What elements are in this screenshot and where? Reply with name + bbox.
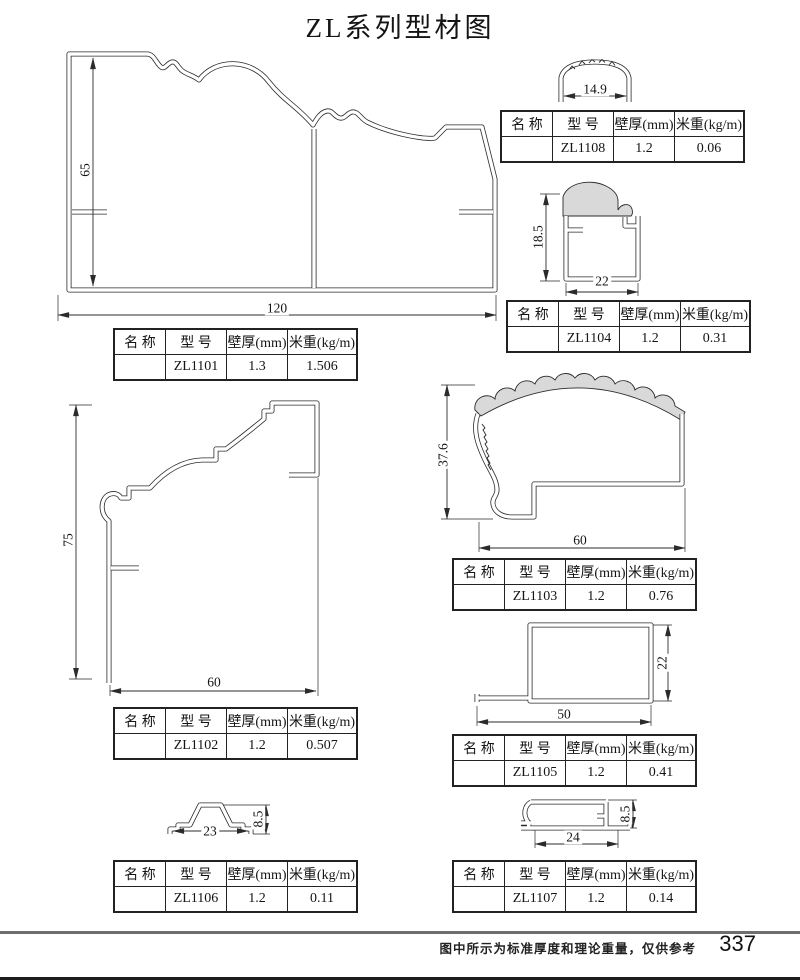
spec-table-zl1102: 名 称 型 号 壁厚(mm) 米重(kg/m) ZL1102 1.2 0.507 (113, 707, 358, 760)
col-name: 名 称 (453, 735, 505, 761)
cell-name (507, 327, 559, 353)
page-number: 337 (719, 931, 756, 957)
cell-model: ZL1102 (166, 734, 227, 760)
col-model: 型 号 (505, 735, 566, 761)
cell-weight: 0.06 (675, 137, 745, 163)
cell-weight: 1.506 (288, 355, 358, 381)
col-name: 名 称 (114, 708, 166, 734)
cell-name (114, 734, 166, 760)
dim-zl1108-width: 14.9 (581, 82, 609, 96)
profile-drawing-zl1103 (435, 372, 705, 557)
cell-thickness: 1.2 (566, 887, 627, 913)
profile-drawing-zl1104 (530, 168, 745, 298)
cell-thickness: 1.2 (620, 327, 681, 353)
col-thickness: 壁厚(mm) (566, 735, 627, 761)
cell-thickness: 1.2 (566, 585, 627, 611)
col-thickness: 壁厚(mm) (620, 301, 681, 327)
col-model: 型 号 (553, 111, 614, 137)
cell-model: ZL1101 (166, 355, 227, 381)
col-weight: 米重(kg/m) (627, 735, 697, 761)
col-model: 型 号 (166, 708, 227, 734)
col-weight: 米重(kg/m) (627, 861, 697, 887)
col-thickness: 壁厚(mm) (227, 708, 288, 734)
dim-zl1104-height: 18.5 (531, 223, 545, 251)
spec-table-zl1101: 名 称 型 号 壁厚(mm) 米重(kg/m) ZL1101 1.3 1.506 (113, 328, 358, 381)
cell-thickness: 1.2 (227, 887, 288, 913)
dim-zl1105-height: 22 (655, 654, 669, 672)
cell-thickness: 1.2 (614, 137, 675, 163)
footer-note: 图中所示为标准厚度和理论重量，仅供参考 (439, 938, 696, 957)
dim-zl1105-width: 50 (555, 707, 573, 721)
col-name: 名 称 (114, 329, 166, 355)
cell-weight: 0.11 (288, 887, 358, 913)
cell-model: ZL1105 (505, 761, 566, 787)
col-weight: 米重(kg/m) (681, 301, 751, 327)
dim-zl1102-width: 60 (205, 675, 223, 689)
cell-name (114, 887, 166, 913)
cell-weight: 0.31 (681, 327, 751, 353)
dim-zl1101-width: 120 (265, 301, 289, 315)
cell-thickness: 1.3 (227, 355, 288, 381)
spec-table-zl1105: 名 称 型 号 壁厚(mm) 米重(kg/m) ZL1105 1.2 0.41 (452, 734, 697, 787)
col-weight: 米重(kg/m) (627, 559, 697, 585)
dim-zl1103-width: 60 (571, 533, 589, 547)
cell-weight: 0.76 (627, 585, 697, 611)
cell-model: ZL1103 (505, 585, 566, 611)
cell-name (453, 887, 505, 913)
col-model: 型 号 (166, 329, 227, 355)
cell-model: ZL1104 (559, 327, 620, 353)
col-weight: 米重(kg/m) (288, 861, 358, 887)
cell-model: ZL1106 (166, 887, 227, 913)
profile-drawing-zl1102 (62, 388, 352, 706)
col-name: 名 称 (507, 301, 559, 327)
col-thickness: 壁厚(mm) (566, 559, 627, 585)
dim-zl1107-width: 24 (564, 830, 582, 844)
profile-drawing-zl1101 (55, 38, 503, 330)
col-model: 型 号 (505, 861, 566, 887)
spec-table-zl1106: 名 称 型 号 壁厚(mm) 米重(kg/m) ZL1106 1.2 0.11 (113, 860, 358, 913)
spec-table-zl1108: 名 称 型 号 壁厚(mm) 米重(kg/m) ZL1108 1.2 0.06 (500, 110, 745, 163)
col-name: 名 称 (114, 861, 166, 887)
dim-zl1103-height: 37.6 (436, 441, 450, 469)
cell-weight: 0.41 (627, 761, 697, 787)
cell-thickness: 1.2 (566, 761, 627, 787)
cell-thickness: 1.2 (227, 734, 288, 760)
profile-drawing-zl1106 (165, 792, 285, 847)
cell-name (453, 761, 505, 787)
cell-name (501, 137, 553, 163)
col-name: 名 称 (501, 111, 553, 137)
col-thickness: 壁厚(mm) (566, 861, 627, 887)
col-thickness: 壁厚(mm) (227, 861, 288, 887)
dim-zl1102-height: 75 (61, 531, 75, 549)
dim-zl1106-height: 8.5 (251, 809, 265, 830)
dim-zl1107-height: 8.5 (618, 804, 632, 825)
col-name: 名 称 (453, 861, 505, 887)
col-weight: 米重(kg/m) (675, 111, 745, 137)
spec-table-zl1107: 名 称 型 号 壁厚(mm) 米重(kg/m) ZL1107 1.2 0.14 (452, 860, 697, 913)
col-model: 型 号 (559, 301, 620, 327)
cell-weight: 0.14 (627, 887, 697, 913)
col-thickness: 壁厚(mm) (227, 329, 288, 355)
cell-model: ZL1108 (553, 137, 614, 163)
cell-name (453, 585, 505, 611)
spec-table-zl1103: 名 称 型 号 壁厚(mm) 米重(kg/m) ZL1103 1.2 0.76 (452, 558, 697, 611)
col-weight: 米重(kg/m) (288, 708, 358, 734)
col-model: 型 号 (505, 559, 566, 585)
cell-name (114, 355, 166, 381)
cell-model: ZL1107 (505, 887, 566, 913)
col-weight: 米重(kg/m) (288, 329, 358, 355)
col-thickness: 壁厚(mm) (614, 111, 675, 137)
dim-zl1101-height: 65 (78, 161, 92, 179)
cell-weight: 0.507 (288, 734, 358, 760)
dim-zl1106-width: 23 (201, 824, 219, 838)
footer-rule (0, 931, 800, 934)
col-model: 型 号 (166, 861, 227, 887)
dim-zl1104-width: 22 (593, 274, 611, 288)
col-name: 名 称 (453, 559, 505, 585)
spec-table-zl1104: 名 称 型 号 壁厚(mm) 米重(kg/m) ZL1104 1.2 0.31 (506, 300, 751, 353)
